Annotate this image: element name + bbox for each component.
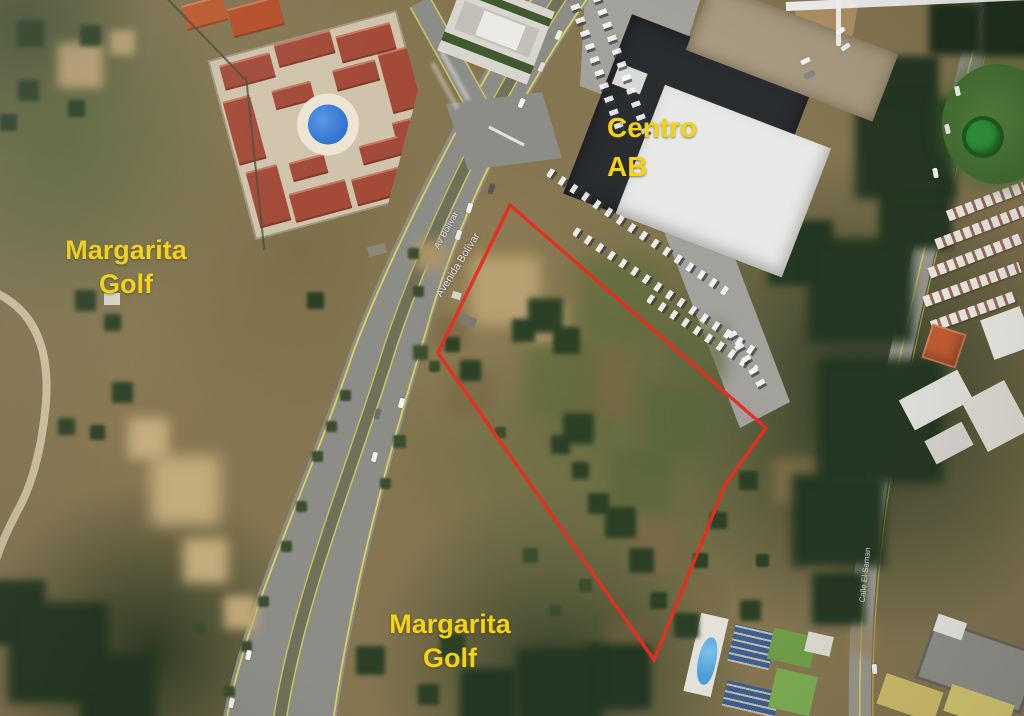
label-centro-ab: Centro AB xyxy=(607,108,727,186)
label-margarita-golf-bottom: Margarita Golf xyxy=(380,608,520,676)
label-line: Centro xyxy=(607,108,727,147)
parcel-outline xyxy=(438,205,766,660)
label-line: AB xyxy=(607,147,727,186)
satellite-map[interactable]: Margarita Golf Margarita Golf Centro AB … xyxy=(0,0,1024,716)
label-line: Margarita xyxy=(56,234,196,268)
label-margarita-golf-left: Margarita Golf xyxy=(56,234,196,302)
label-line: Golf xyxy=(380,642,520,676)
photo-artifact-line xyxy=(836,0,841,46)
label-line: Margarita xyxy=(380,608,520,642)
label-line: Golf xyxy=(56,268,196,302)
